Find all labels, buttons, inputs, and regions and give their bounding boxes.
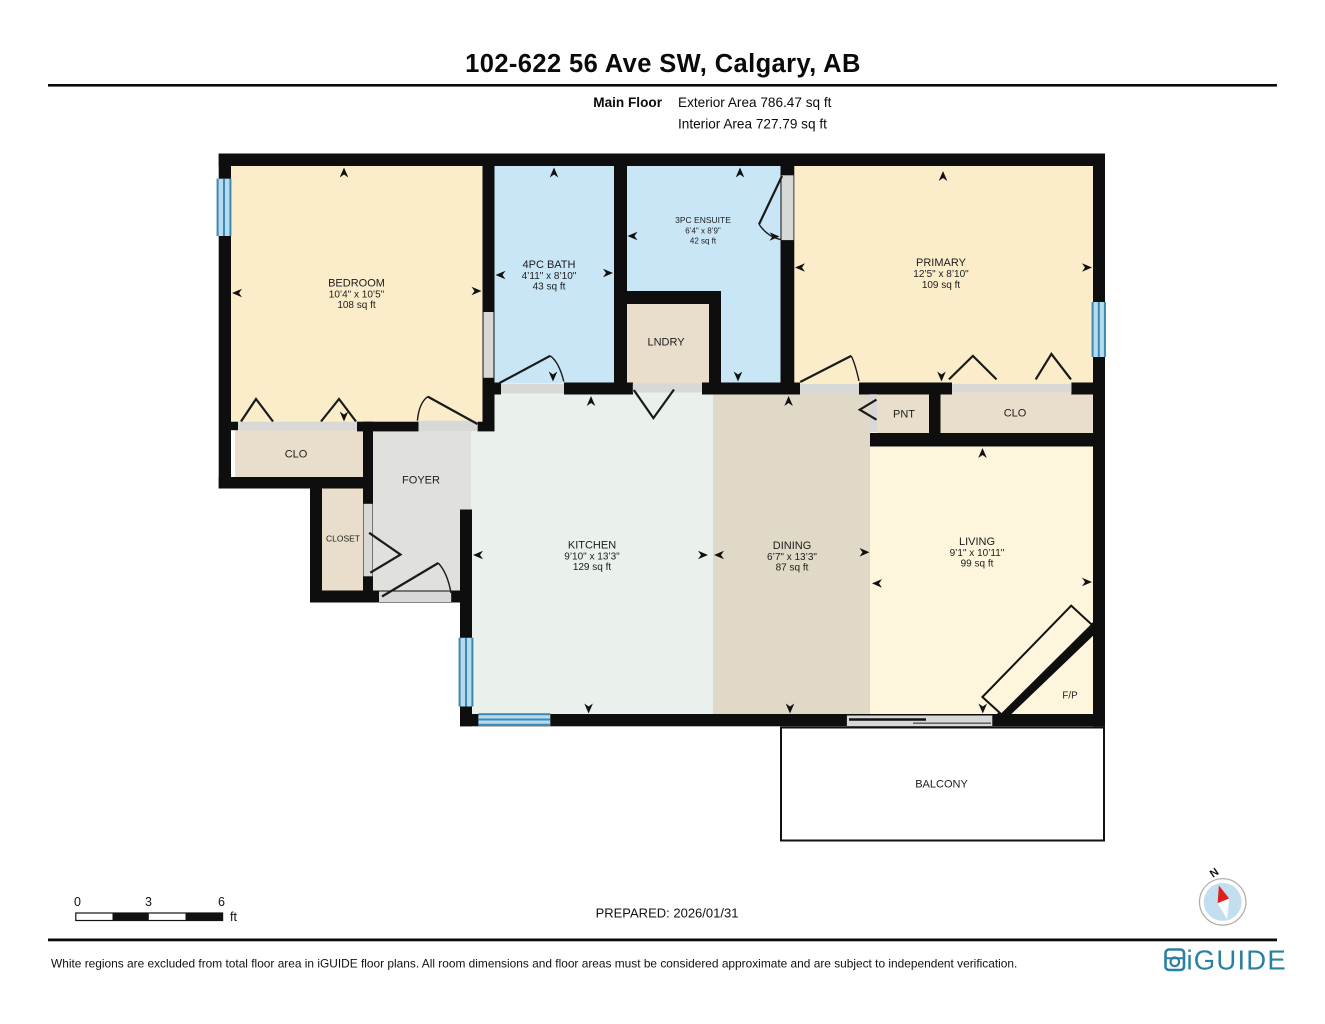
- svg-text:99 sq ft: 99 sq ft: [961, 559, 994, 570]
- svg-text:CLO: CLO: [285, 449, 308, 461]
- svg-text:43 sq ft: 43 sq ft: [533, 282, 566, 293]
- svg-text:42 sq ft: 42 sq ft: [690, 237, 717, 246]
- svg-text:109 sq ft: 109 sq ft: [922, 280, 961, 291]
- svg-text:102-622 56 Ave SW, Calgary, AB: 102-622 56 Ave SW, Calgary, AB: [465, 50, 861, 78]
- svg-text:4PC BATH: 4PC BATH: [523, 259, 576, 271]
- svg-text:9’1" x 10’11": 9’1" x 10’11": [950, 548, 1005, 559]
- svg-text:0: 0: [74, 895, 81, 909]
- svg-text:BALCONY: BALCONY: [915, 779, 968, 791]
- svg-text:9’10" x 13’3": 9’10" x 13’3": [564, 552, 620, 563]
- svg-text:6’7" x 13’3": 6’7" x 13’3": [767, 552, 817, 563]
- svg-text:KITCHEN: KITCHEN: [568, 540, 616, 552]
- svg-text:6: 6: [218, 895, 225, 909]
- svg-text:3PC ENSUITE: 3PC ENSUITE: [675, 215, 731, 225]
- svg-text:108 sq ft: 108 sq ft: [337, 300, 376, 311]
- svg-text:CLO: CLO: [1004, 408, 1027, 420]
- svg-text:PREPARED: 2026/01/31: PREPARED: 2026/01/31: [596, 906, 739, 921]
- svg-text:LNDRY: LNDRY: [647, 337, 685, 349]
- svg-text:PNT: PNT: [893, 409, 915, 421]
- svg-text:Main Floor: Main Floor: [593, 95, 662, 110]
- svg-text:PRIMARY: PRIMARY: [916, 257, 967, 269]
- svg-text:White regions are excluded fro: White regions are excluded from total fl…: [51, 957, 1017, 971]
- svg-text:LIVING: LIVING: [959, 536, 995, 548]
- svg-text:129 sq ft: 129 sq ft: [573, 562, 612, 573]
- svg-text:3: 3: [145, 895, 152, 909]
- svg-text:iGUIDE: iGUIDE: [1187, 945, 1287, 976]
- svg-text:Exterior Area 786.47 sq ft: Exterior Area 786.47 sq ft: [678, 95, 832, 110]
- svg-text:10’4" x 10’5": 10’4" x 10’5": [329, 289, 385, 300]
- svg-text:CLOSET: CLOSET: [326, 534, 360, 544]
- svg-text:6’4" x 8’9": 6’4" x 8’9": [685, 227, 721, 236]
- svg-text:F/P: F/P: [1062, 691, 1078, 702]
- svg-text:Interior Area 727.79 sq ft: Interior Area 727.79 sq ft: [678, 117, 827, 132]
- svg-text:4’11" x 8’10": 4’11" x 8’10": [522, 271, 577, 282]
- svg-text:87 sq ft: 87 sq ft: [776, 563, 809, 574]
- svg-text:FOYER: FOYER: [402, 475, 440, 487]
- svg-text:12’5" x 8’10": 12’5" x 8’10": [913, 269, 969, 280]
- svg-text:BEDROOM: BEDROOM: [328, 277, 385, 289]
- svg-text:DINING: DINING: [773, 540, 812, 552]
- svg-text:ft: ft: [230, 910, 237, 924]
